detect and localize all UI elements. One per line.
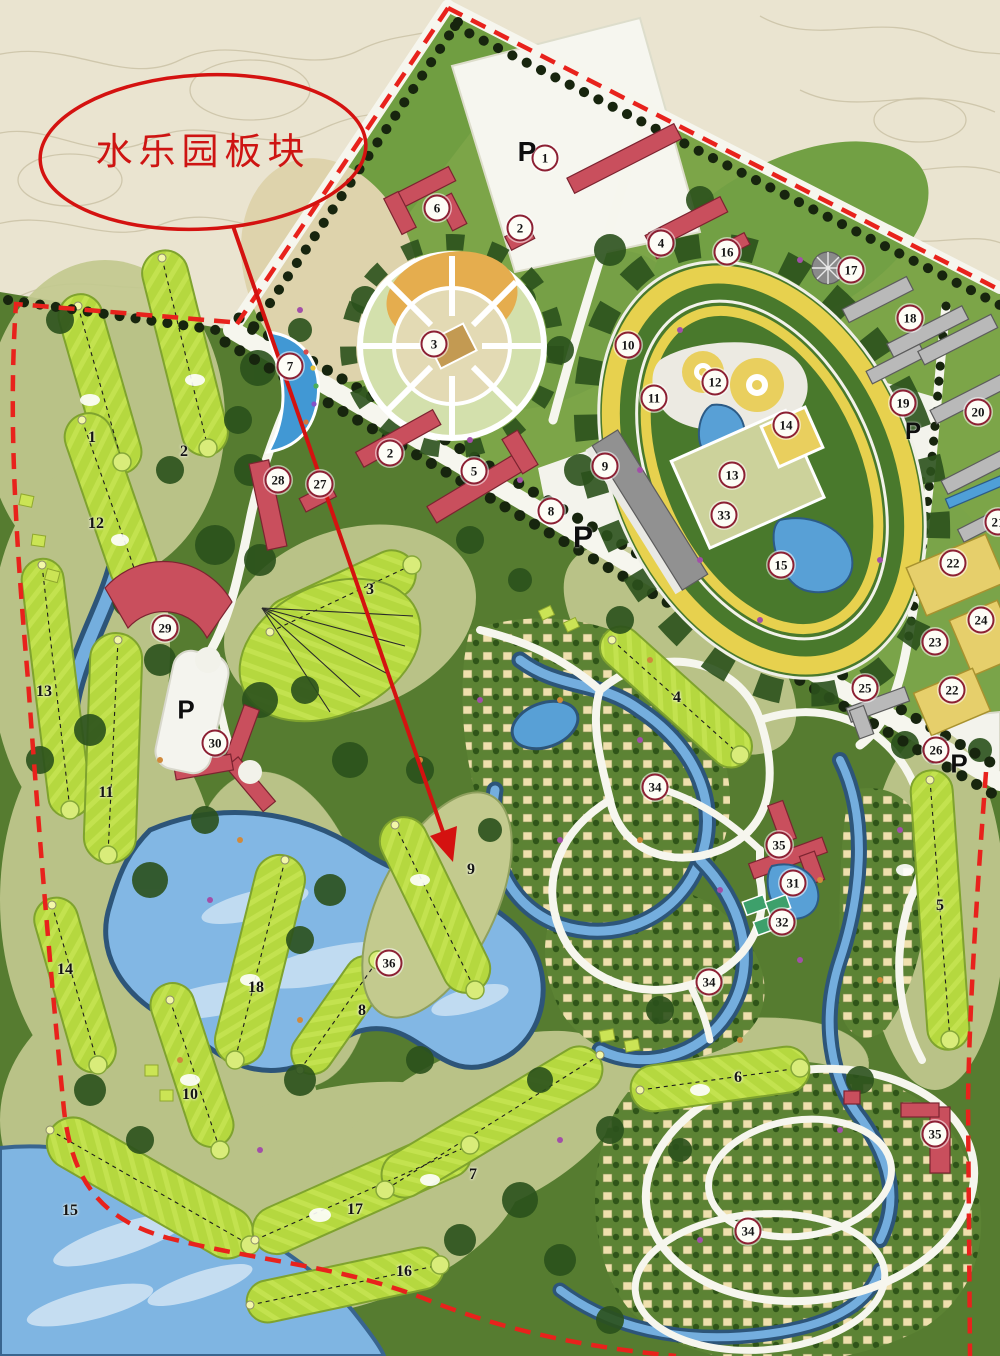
map-marker-circled: 6 <box>424 195 451 222</box>
map-marker-circled: 10 <box>615 332 642 359</box>
map-marker-circled: 26 <box>923 737 950 764</box>
map-marker-circled: 24 <box>968 607 995 634</box>
map-marker-circled: 34 <box>642 774 669 801</box>
golf-hole-number: 4 <box>673 689 681 707</box>
map-marker-circled: 36 <box>376 950 403 977</box>
map-marker-circled: 33 <box>711 502 738 529</box>
map-marker-circled: 35 <box>922 1121 949 1148</box>
map-marker-circled: 7 <box>277 353 304 380</box>
golf-hole-number: 1 <box>88 429 96 447</box>
map-marker-circled: 29 <box>152 615 179 642</box>
map-marker-circled: 11 <box>641 385 668 412</box>
map-marker-circled: 27 <box>307 471 334 498</box>
golf-hole-number: 9 <box>467 861 475 879</box>
map-marker-circled: 12 <box>702 369 729 396</box>
parking-label: P <box>573 521 593 555</box>
map-marker-circled: 5 <box>461 458 488 485</box>
parking-label: P <box>518 136 537 168</box>
map-marker-circled: 28 <box>265 467 292 494</box>
map-marker-circled: 2 <box>377 440 404 467</box>
map-marker-circled: 34 <box>696 969 723 996</box>
map-marker-circled: 25 <box>852 675 879 702</box>
map-marker-circled: 23 <box>922 629 949 656</box>
map-marker-circled: 22 <box>940 550 967 577</box>
map-marker-circled: 30 <box>202 730 229 757</box>
golf-hole-number: 5 <box>936 897 944 915</box>
golf-hole-number: 3 <box>366 581 374 599</box>
golf-hole-number: 12 <box>88 515 104 533</box>
map-marker-circled: 20 <box>965 399 992 426</box>
golf-hole-number: 17 <box>347 1201 363 1219</box>
golf-hole-number: 10 <box>182 1086 198 1104</box>
golf-hole-number: 14 <box>57 961 73 979</box>
parking-label: P <box>177 695 194 726</box>
map-marker-circled: 31 <box>780 870 807 897</box>
master-plan-map: 1624161718103712111920142951328278332122… <box>0 0 1000 1356</box>
map-marker-circled: 21 <box>985 509 1000 536</box>
golf-hole-number: 15 <box>62 1202 78 1220</box>
golf-hole-number: 8 <box>358 1002 366 1020</box>
map-marker-circled: 22 <box>939 677 966 704</box>
map-marker-circled: 3 <box>421 331 448 358</box>
map-marker-circled: 32 <box>769 909 796 936</box>
map-marker-circled: 35 <box>766 832 793 859</box>
golf-hole-number: 18 <box>248 979 264 997</box>
annotation-label: 水乐园板块 <box>96 121 311 175</box>
map-marker-circled: 18 <box>897 305 924 332</box>
map-marker-circled: 2 <box>507 215 534 242</box>
golf-hole-number: 6 <box>734 1069 742 1087</box>
marker-layer: 1624161718103712111920142951328278332122… <box>0 0 1000 1356</box>
parking-label: P <box>905 418 921 446</box>
map-marker-circled: 19 <box>890 390 917 417</box>
golf-hole-number: 16 <box>396 1263 412 1281</box>
map-marker-circled: 16 <box>714 239 741 266</box>
map-marker-circled: 14 <box>773 412 800 439</box>
golf-hole-number: 13 <box>36 683 52 701</box>
map-marker-circled: 17 <box>838 257 865 284</box>
map-marker-circled: 4 <box>648 230 675 257</box>
golf-hole-number: 11 <box>98 784 113 802</box>
map-marker-circled: 15 <box>768 552 795 579</box>
map-marker-circled: 8 <box>538 498 565 525</box>
parking-label: P <box>950 749 967 780</box>
map-marker-circled: 34 <box>735 1218 762 1245</box>
map-marker-circled: 9 <box>592 453 619 480</box>
golf-hole-number: 2 <box>180 443 188 461</box>
golf-hole-number: 7 <box>469 1166 477 1184</box>
map-marker-circled: 13 <box>719 462 746 489</box>
